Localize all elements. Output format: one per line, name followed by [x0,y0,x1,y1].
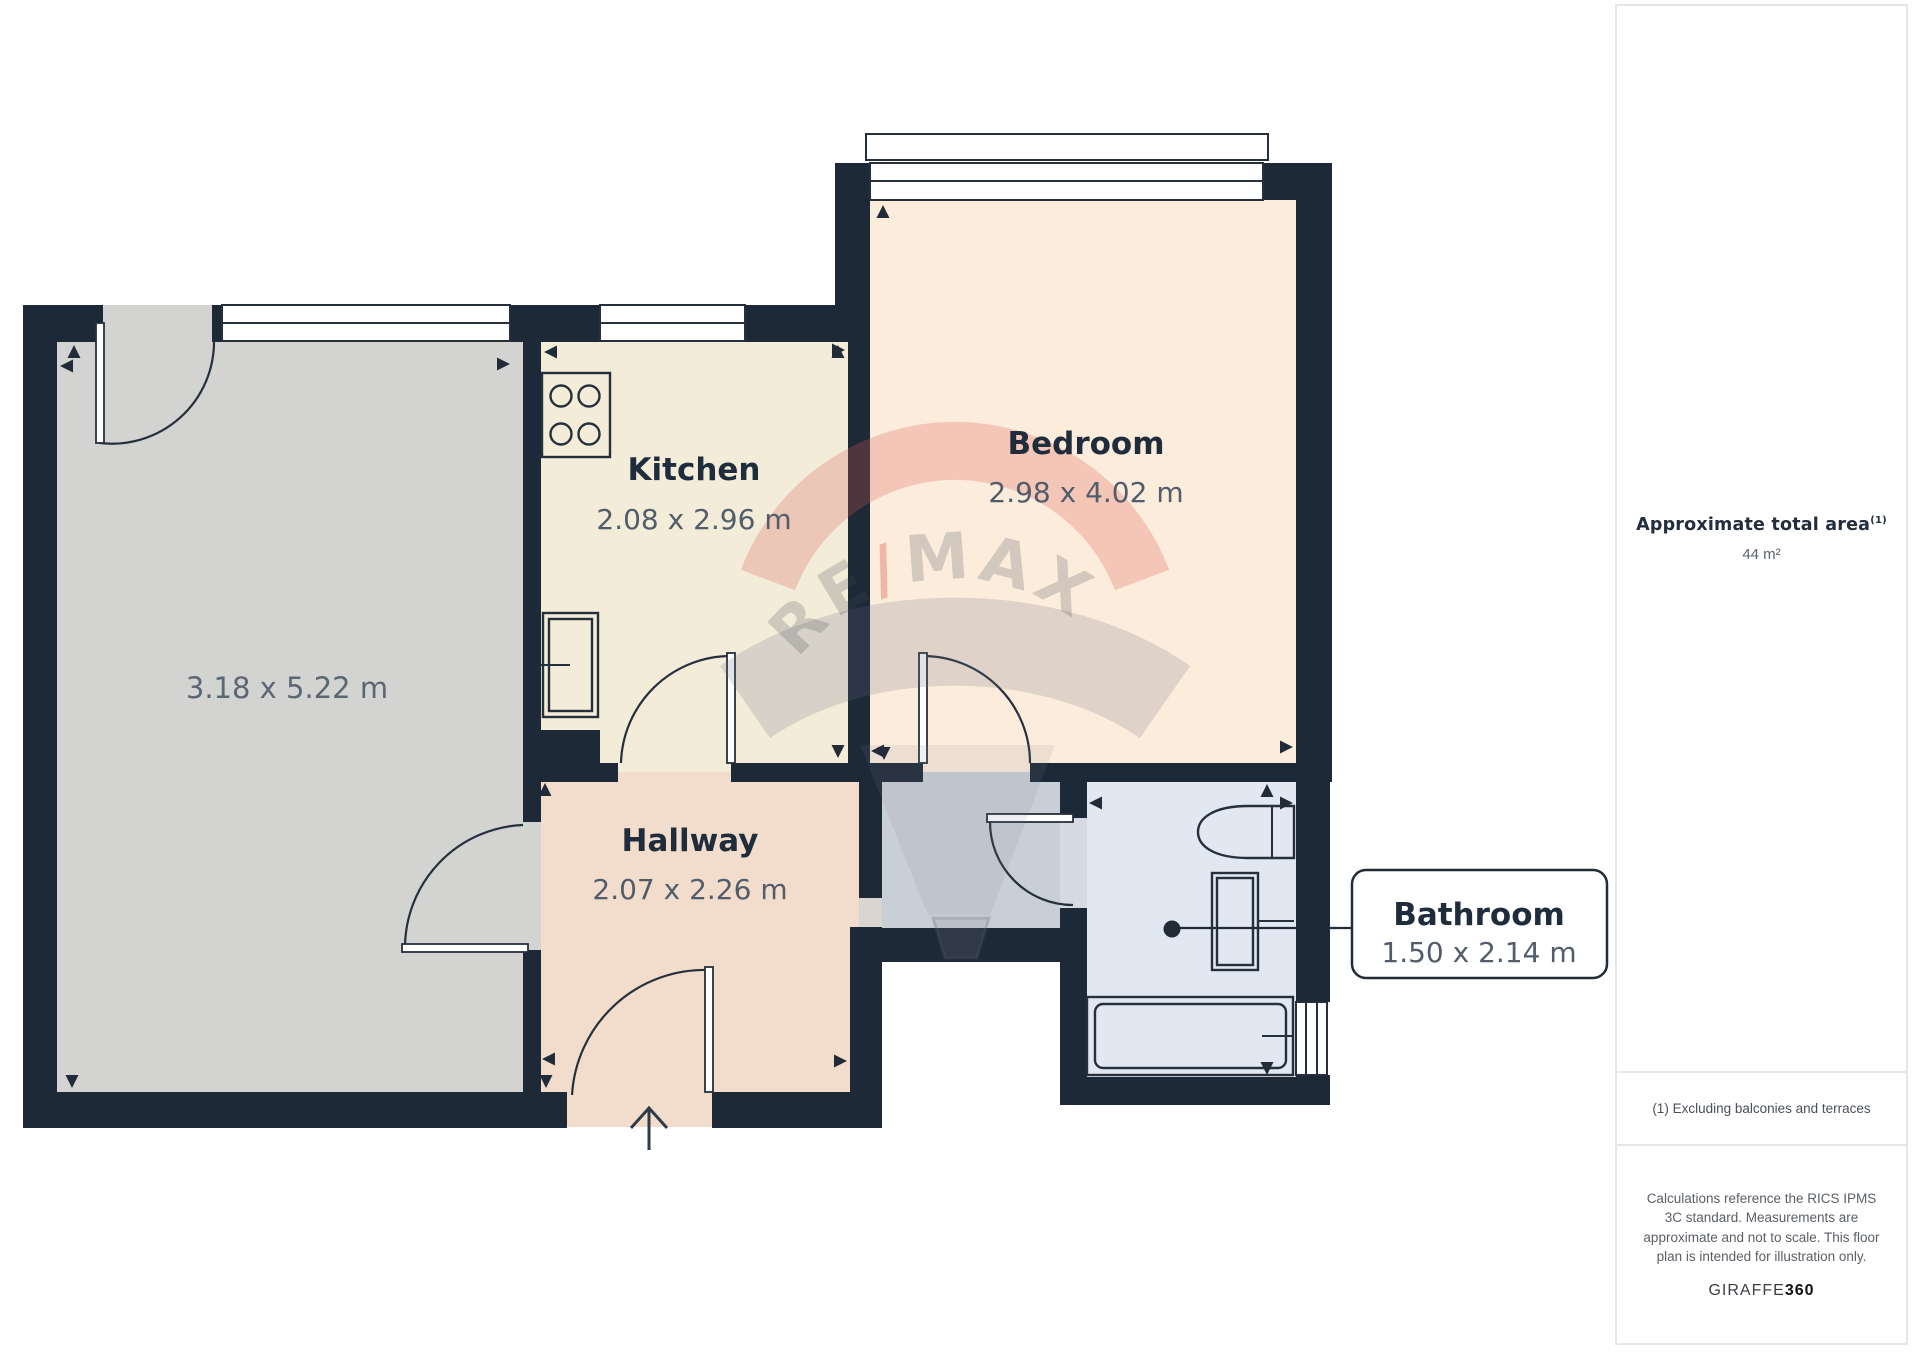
total-area-title-text: Approximate total area [1636,515,1870,535]
hallway-label: Hallway [622,823,759,859]
bathroom-dims: 1.50 x 2.14 m [1381,936,1576,969]
total-area-value: 44 m² [1742,546,1780,563]
kitchen-door-gap-a [618,763,731,773]
entrance-door [705,967,713,1092]
kitchen-label: Kitchen [627,452,760,488]
entrance-gap [567,1092,712,1127]
kitchen-door-gap-b [618,772,731,782]
bathroom-window [1296,1002,1327,1075]
toilet-icon [1198,806,1294,858]
living-room-dims: 3.18 x 5.22 m [186,671,388,705]
footnote-text: (1) Excluding balconies and terraces [1652,1101,1870,1116]
disclaimer-text: Calculations reference the RICS IPMS 3C … [1641,1189,1883,1266]
info-sidebar: Approximate total area(1) 44 m² (1) Excl… [1615,4,1908,1345]
kitchen-sink-icon [541,613,598,717]
bathroom-label: Bathroom [1393,897,1565,933]
disclaimer-section: Calculations reference the RICS IPMS 3C … [1617,1146,1906,1343]
living-room-floor [57,341,523,1092]
callout-anchor-dot [1164,921,1181,938]
bathroom-door-gap [1060,818,1087,908]
total-area-superscript: (1) [1870,515,1887,526]
living-hall-door-gap [523,822,541,950]
corridor-opening [859,898,882,928]
total-area-section: Approximate total area(1) 44 m² [1617,6,1906,1073]
kitchen-dims: 2.08 x 2.96 m [596,503,791,536]
giraffe360-logo: GIRAFFE360 [1708,1282,1814,1300]
living-door-gap [103,305,212,342]
total-area-title: Approximate total area(1) [1636,515,1887,535]
floorplan-drawing: RE/MAX [0,0,1612,1358]
footnote-section: (1) Excluding balconies and terraces [1617,1073,1906,1146]
giraffe360-logo-suffix: 360 [1785,1282,1815,1299]
bedroom-label: Bedroom [1007,426,1164,462]
giraffe360-logo-name: GIRAFFE [1708,1282,1784,1299]
hallway-dims: 2.07 x 2.26 m [592,873,787,906]
bedroom-window-sill [866,134,1268,160]
stove-icon [542,373,610,457]
living-hall-door [402,944,528,952]
living-exterior-door [96,323,104,443]
floorplan-page: RE/MAX [0,0,1920,1358]
bedroom-dims: 2.98 x 4.02 m [988,476,1183,509]
